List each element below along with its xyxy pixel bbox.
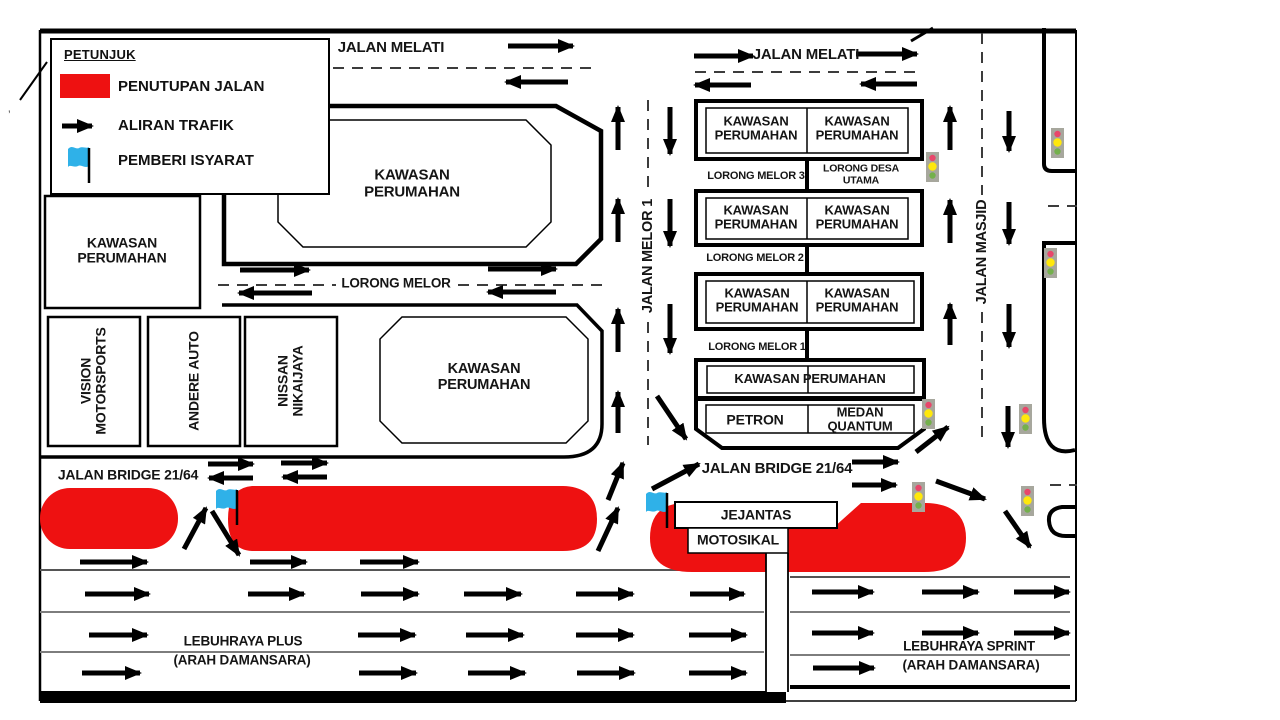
road-label-lorong-melor: LORONG MELOR bbox=[341, 277, 450, 292]
road-label-jalan-bridge-west: JALAN BRIDGE 21/64 bbox=[58, 467, 198, 482]
road-label-jalan-melati-west: JALAN MELATI bbox=[338, 40, 444, 57]
building-label-petron: PETRON bbox=[726, 412, 783, 427]
bottom-road-bar bbox=[40, 691, 786, 703]
road-label-lorong-melor-2: LORONG MELOR 2 bbox=[706, 252, 803, 264]
legend-item-penutupan-jalan: PENUTUPAN JALAN bbox=[118, 78, 264, 95]
signal-flag-icon bbox=[68, 145, 98, 187]
flow-arrow-icon bbox=[1005, 511, 1030, 547]
label-jejantas: JEJANTAS bbox=[721, 507, 792, 522]
right-side-kerbs bbox=[1044, 28, 1076, 536]
traffic-light-icon bbox=[922, 399, 935, 429]
road-label-lorong-desa-utama: LORONG DESA UTAMA bbox=[815, 163, 907, 186]
traffic-light-icon bbox=[912, 482, 925, 512]
road-label-jalan-masjid: JALAN MASJID bbox=[975, 200, 991, 305]
building-label-andere-auto: ANDERE AUTO bbox=[186, 331, 201, 431]
flow-arrow-icon bbox=[936, 481, 985, 499]
road-label-lebuhraya-plus: LEBUHRAYA PLUS bbox=[184, 635, 303, 650]
road-label-lorong-melor-1: LORONG MELOR 1 bbox=[708, 341, 805, 353]
road-label-lebuhraya-sprint: LEBUHRAYA SPRINT bbox=[903, 640, 1035, 655]
building-label-vision-motorsports: VISION MOTORSPORTS bbox=[79, 314, 110, 449]
closure-left bbox=[40, 488, 178, 549]
building-label-nissan-nikaijaya: NISSAN NIKAIJAYA bbox=[276, 334, 307, 429]
road-label-arah-damansara-sprint: (ARAH DAMANSARA) bbox=[902, 659, 1039, 674]
building-label-kawasan-a2: KAWASAN PERUMAHAN bbox=[807, 115, 907, 144]
legend-panel: PETUNJUK PENUTUPAN JALAN ALIRAN TRAFIK P… bbox=[50, 38, 330, 195]
flow-arrow-icon bbox=[608, 463, 623, 500]
building-label-kawasan-left: KAWASAN PERUMAHAN bbox=[65, 236, 180, 267]
flow-arrow-icon bbox=[652, 464, 699, 489]
road-label-jalan-melor-1: JALAN MELOR 1 bbox=[641, 199, 657, 313]
road-label-jalan-bridge-east: JALAN BRIDGE 21/64 bbox=[702, 461, 853, 478]
traffic-light-icon bbox=[1021, 486, 1034, 516]
label-motosikal: MOTOSIKAL bbox=[697, 532, 779, 547]
building-label-kawasan-c1: KAWASAN PERUMAHAN bbox=[707, 287, 807, 316]
flow-arrow-icon bbox=[184, 508, 206, 549]
building-label-kawasan-b2: KAWASAN PERUMAHAN bbox=[807, 204, 907, 233]
road-label-arah-damansara-plus: (ARAH DAMANSARA) bbox=[173, 654, 310, 669]
road-label-lorong-melor-3: LORONG MELOR 3 bbox=[707, 170, 804, 182]
flow-arrow-icon bbox=[657, 396, 686, 439]
road-closure-swatch-icon bbox=[60, 74, 110, 98]
traffic-lights-layer bbox=[912, 128, 1064, 516]
building-label-medan-quantum: MEDAN QUANTUM bbox=[818, 406, 903, 435]
traffic-management-plan-map: PETUNJUK PENUTUPAN JALAN ALIRAN TRAFIK P… bbox=[0, 0, 1280, 720]
road-label-jalan-melati-east: JALAN MELATI bbox=[753, 47, 859, 64]
building-label-kawasan-c2: KAWASAN PERUMAHAN bbox=[807, 287, 907, 316]
building-label-kawasan-a1: KAWASAN PERUMAHAN bbox=[706, 115, 806, 144]
traffic-light-icon bbox=[1044, 248, 1057, 278]
top-left-road-bend bbox=[20, 62, 47, 100]
building-label-kawasan-center: KAWASAN PERUMAHAN bbox=[424, 362, 544, 394]
building-label-kawasan-d: KAWASAN PERUMAHAN bbox=[734, 372, 885, 386]
traffic-light-icon bbox=[1051, 128, 1064, 158]
closure-middle bbox=[228, 486, 597, 551]
stray-mark: ’ bbox=[8, 108, 11, 122]
legend-item-aliran-trafik: ALIRAN TRAFIK bbox=[118, 117, 234, 134]
building-label-kawasan-b1: KAWASAN PERUMAHAN bbox=[706, 204, 806, 233]
flow-arrow-icon bbox=[60, 118, 110, 134]
building-label-kawasan-top: KAWASAN PERUMAHAN bbox=[350, 168, 475, 201]
traffic-light-icon bbox=[1019, 404, 1032, 434]
legend-item-pemberi-isyarat: PEMBERI ISYARAT bbox=[118, 152, 254, 169]
legend-title: PETUNJUK bbox=[64, 47, 136, 62]
flow-arrow-icon bbox=[598, 508, 618, 551]
traffic-light-icon bbox=[926, 152, 939, 182]
